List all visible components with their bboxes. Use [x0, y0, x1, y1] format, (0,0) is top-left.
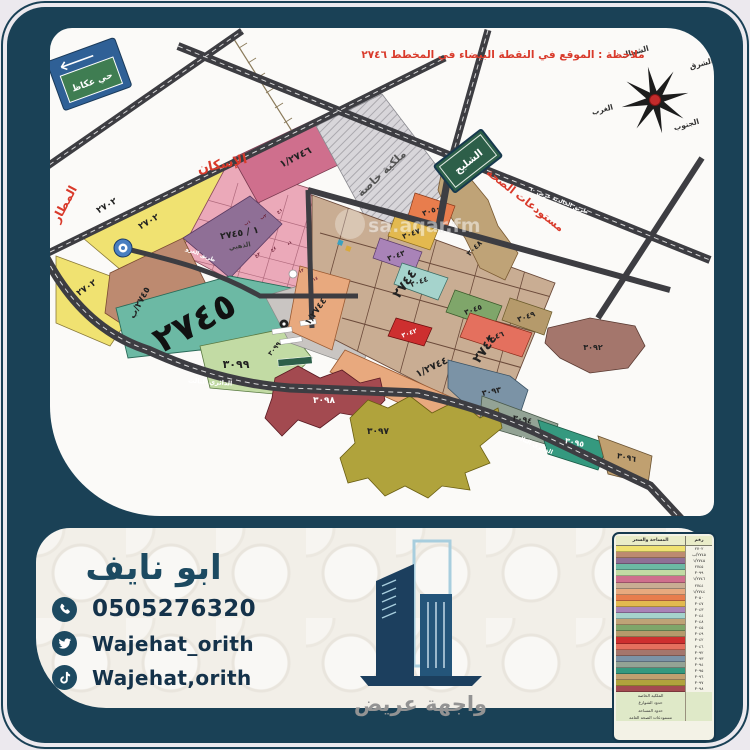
twitter-handle: Wajehat_orith — [92, 632, 254, 656]
plot-2702-label-a: ٢٧٠٢ — [95, 196, 119, 216]
legend-footer-spacer — [685, 714, 712, 721]
okaz-road-sign: حي عكاظ — [50, 37, 132, 110]
compass-south-label: الجنوب — [673, 117, 701, 132]
roundabout-icon — [114, 239, 132, 257]
legend-footer-label: حدود الشوارع — [616, 699, 685, 706]
mosque-dot-center — [282, 322, 285, 325]
company-logo: واجهة عريض — [338, 536, 503, 716]
legend-footer-row: مستودعات الصحة العامة — [616, 714, 712, 721]
twitter-icon — [52, 631, 77, 656]
legend-table: رقم القطعة المساحة والسعر ٢٧٠٢٢٧٤٥/ب١/٢٧… — [612, 532, 716, 742]
tiktok-icon — [52, 665, 77, 690]
svg-text:sa.aqar.fm: sa.aqar.fm — [368, 215, 481, 237]
map-panel: sa.aqar.fm حي عكاظ الشليح الشمال الشرق ا… — [50, 28, 714, 516]
company-name: واجهة عريض — [338, 692, 503, 716]
plot-3099-label-big: ٣٠٩٩ — [223, 358, 250, 371]
compass-west-label: الغرب — [591, 102, 614, 116]
phone-icon — [52, 597, 77, 622]
airport-label: المطار — [50, 183, 80, 226]
legend-footer-label: الملكية الخاصة — [616, 692, 685, 699]
ring3-label: الدائري الثالث — [188, 376, 233, 387]
legend-footer-spacer — [685, 692, 712, 699]
tiktok-handle: Wajehat,orith — [92, 666, 252, 690]
compass-east-label: الشرق — [688, 56, 714, 71]
agent-name: ابو نايف — [46, 550, 261, 587]
plot-3098-label: ٣٠٩٨ — [313, 396, 335, 406]
plot-3092-label: ٣٠٩٢ — [583, 343, 603, 352]
tiktok-row: Wajehat,orith — [52, 665, 376, 690]
legend-footer-spacer — [685, 707, 712, 714]
legend-header: رقم القطعة المساحة والسعر — [616, 536, 712, 546]
legend-footer-row: حدود الشوارع — [616, 699, 712, 706]
legend-header-plot: رقم القطعة — [685, 536, 712, 545]
legend-footer-spacer — [685, 699, 712, 706]
legend-footer-row: الملكية الخاصة — [616, 692, 712, 699]
buildings-icon — [356, 536, 486, 686]
legend-footer-label: حدود المساحة — [616, 707, 685, 714]
legend-footer-label: مستودعات الصحة العامة — [616, 714, 685, 721]
legend-rows: ٢٧٠٢٢٧٤٥/ب١/٢٧٤٥٢٧٤٥٣٠٩٩١/٢٧٤٦٢٧٤٤١/٢٧٤٤… — [616, 546, 712, 692]
contact-block: ابو نايف 0505276320 Wajehat_orith Wajeha… — [46, 550, 376, 690]
white-location-dot — [289, 270, 297, 278]
phone-row: 0505276320 — [52, 596, 376, 622]
legend-footer-row: حدود المساحة — [616, 707, 712, 714]
twitter-row: Wajehat_orith — [52, 631, 376, 656]
legend-footer: الملكية الخاصةحدود الشوارعحدود المساحةمس… — [616, 692, 712, 721]
map-note: ملاحظة : الموقع في النقطة البيضاء في الم… — [361, 49, 644, 61]
legend-header-details: المساحة والسعر — [616, 536, 685, 545]
plot-map: sa.aqar.fm حي عكاظ الشليح الشمال الشرق ا… — [50, 28, 714, 516]
plot-3097-label: ٣٠٩٧ — [367, 427, 389, 437]
phone-number: 0505276320 — [92, 596, 256, 622]
